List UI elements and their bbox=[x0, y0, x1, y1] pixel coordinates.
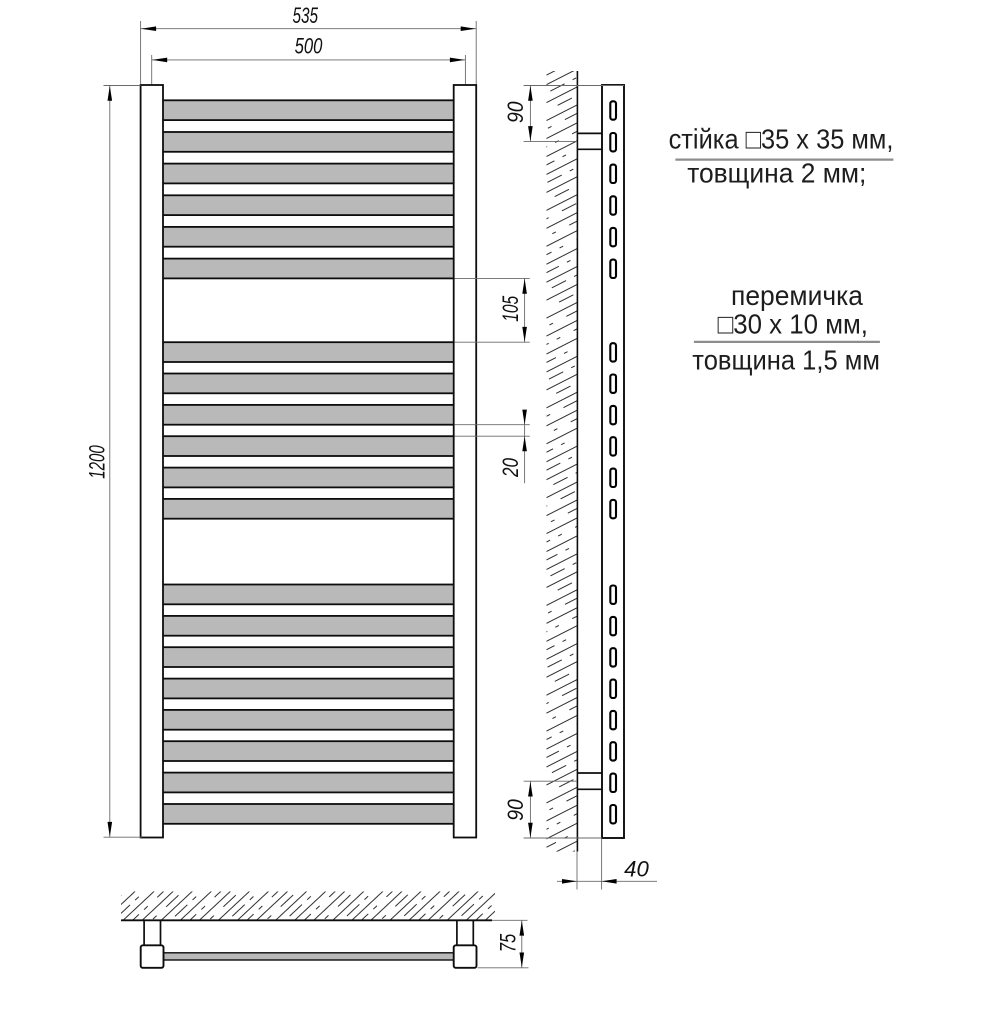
svg-text:105: 105 bbox=[498, 295, 523, 322]
svg-text:товщина 1,5 мм: товщина 1,5 мм bbox=[692, 345, 880, 376]
svg-text:40: 40 bbox=[624, 857, 649, 882]
svg-text:90: 90 bbox=[503, 101, 528, 123]
svg-text:□30 x 10 мм,: □30 x 10 мм, bbox=[718, 308, 868, 339]
svg-text:75: 75 bbox=[495, 933, 520, 952]
svg-text:товщина 2 мм;: товщина 2 мм; bbox=[687, 158, 866, 189]
svg-text:стійка □35 x 35 мм,: стійка □35 x 35 мм, bbox=[669, 124, 894, 155]
svg-text:500: 500 bbox=[295, 33, 323, 58]
svg-text:перемичка: перемичка bbox=[731, 280, 863, 311]
svg-text:20: 20 bbox=[498, 457, 523, 477]
svg-text:90: 90 bbox=[503, 799, 528, 821]
svg-text:535: 535 bbox=[293, 3, 319, 28]
svg-text:1200: 1200 bbox=[84, 445, 109, 479]
